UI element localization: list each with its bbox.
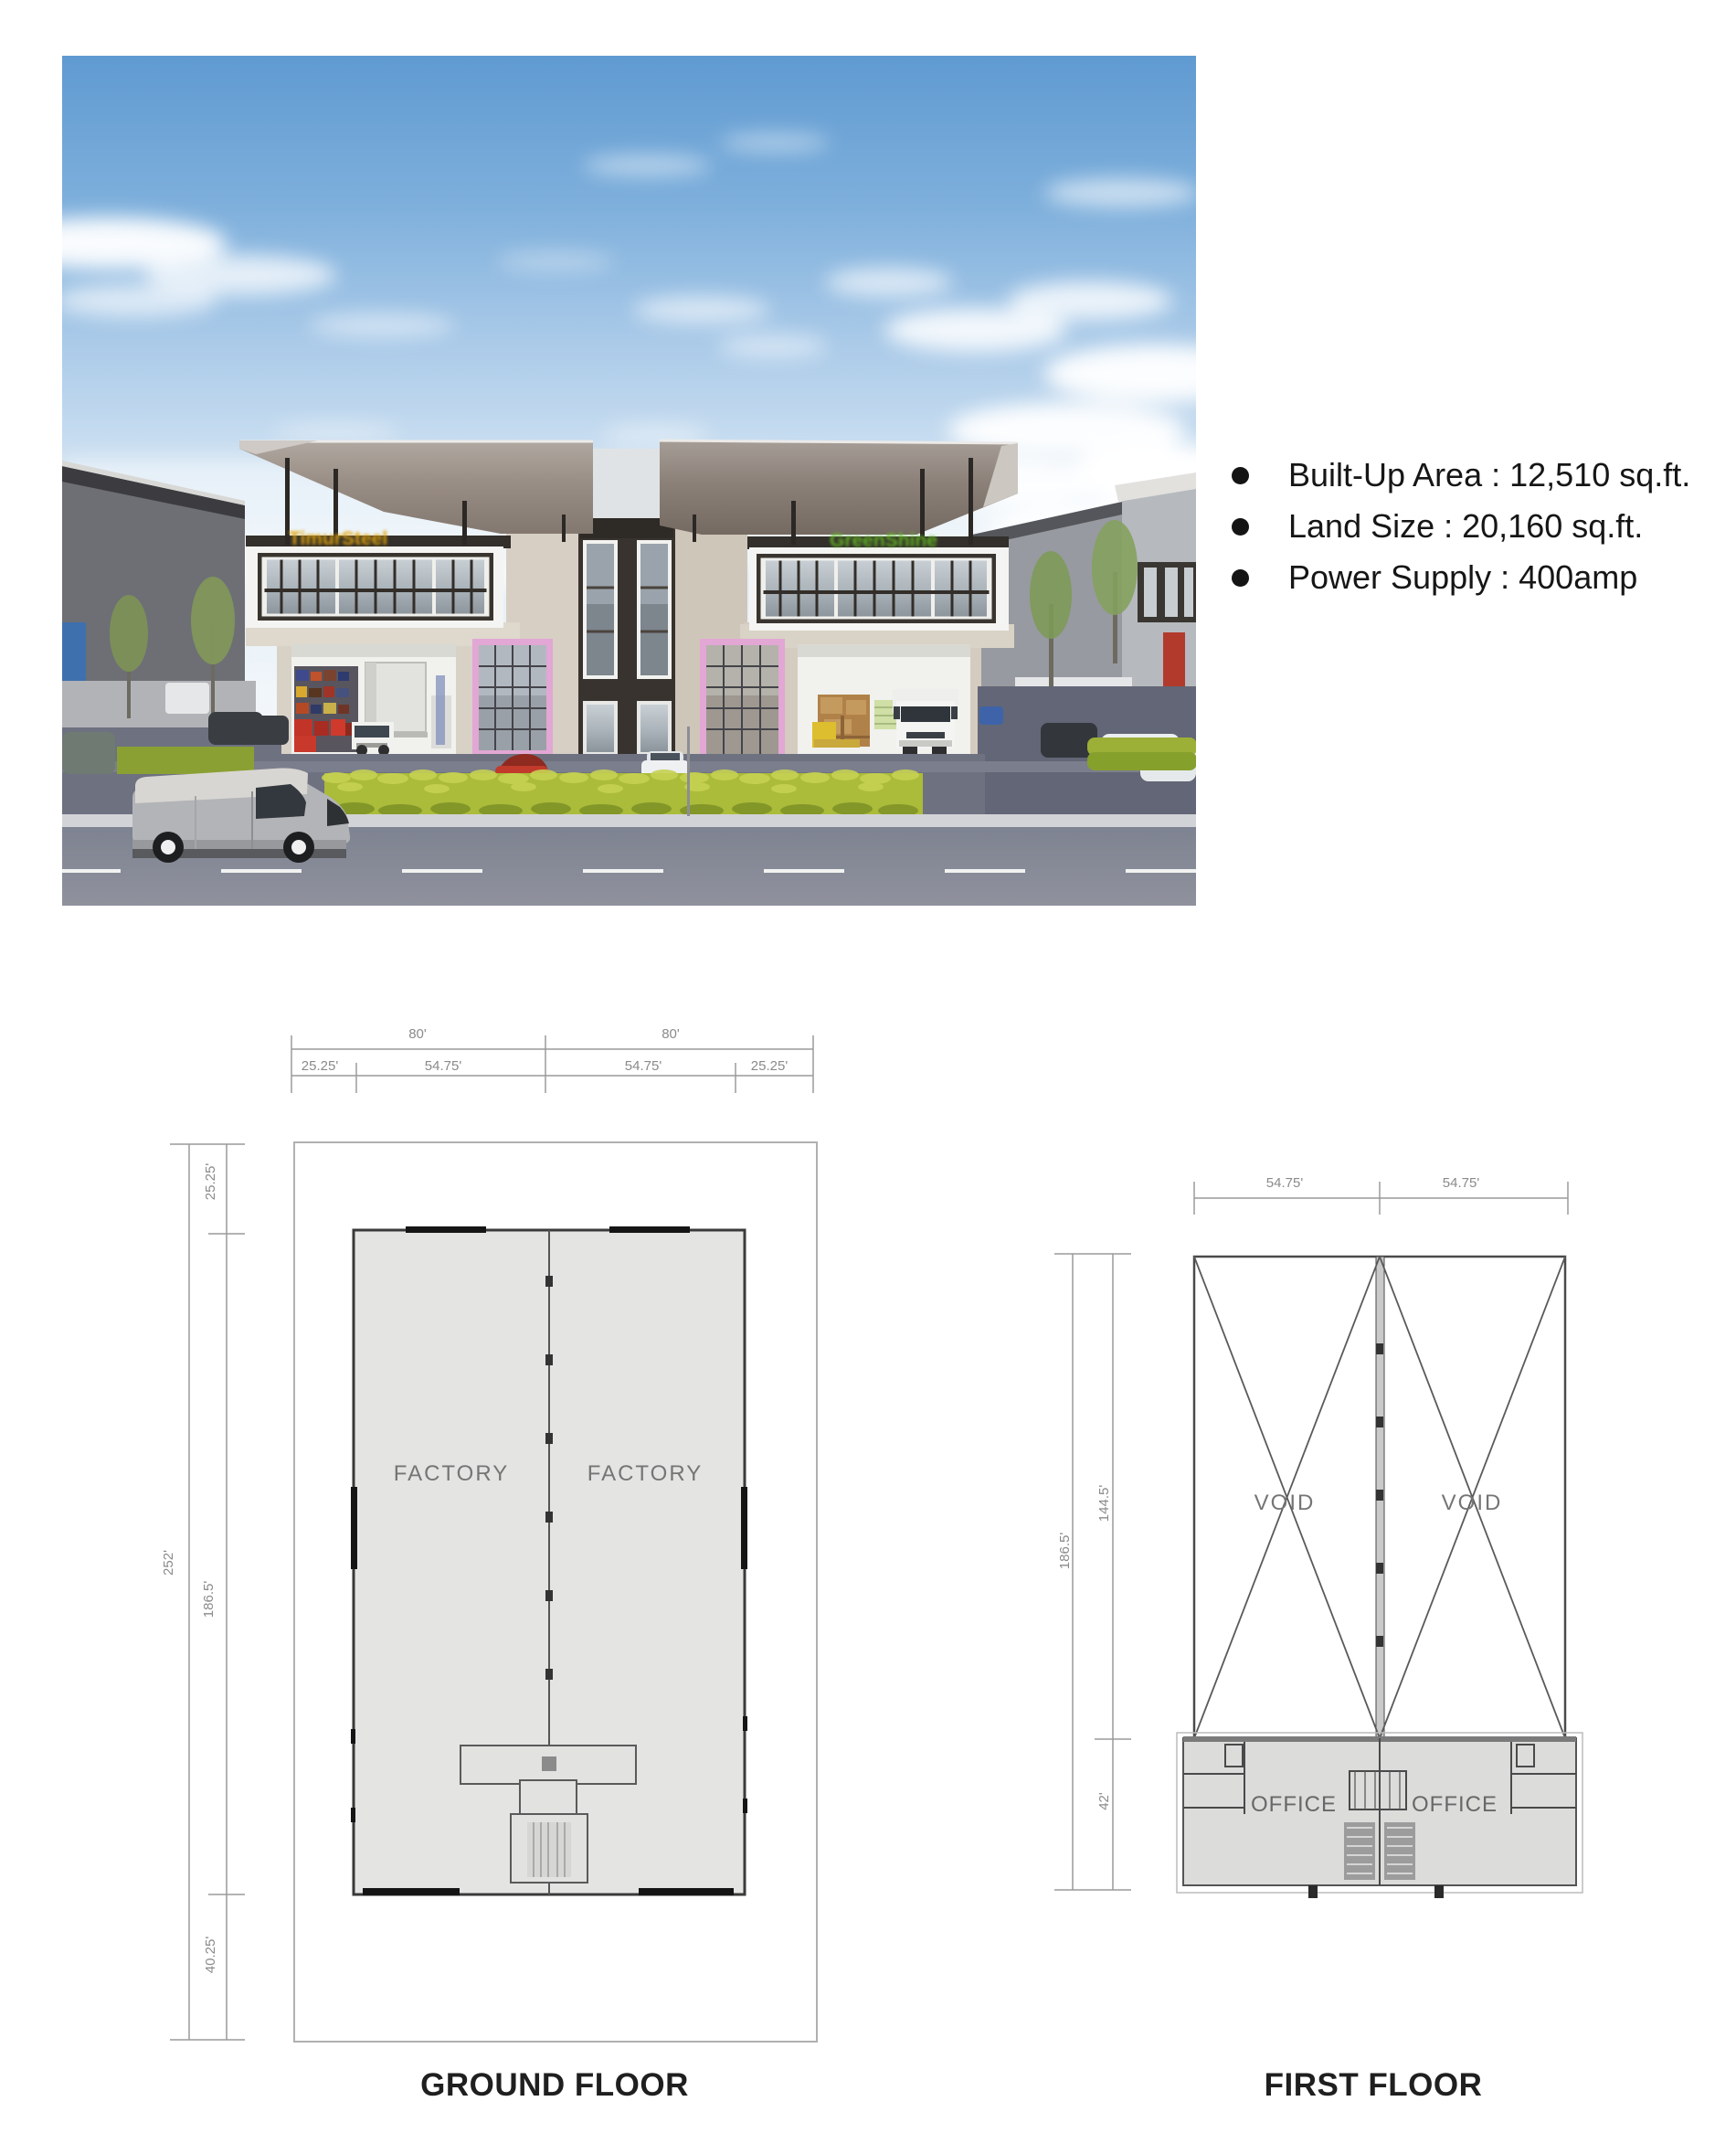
svg-text:252': 252' <box>161 1550 176 1576</box>
svg-text:25.25': 25.25' <box>751 1058 789 1074</box>
svg-text:FACTORY: FACTORY <box>587 1461 703 1486</box>
svg-text:54.75': 54.75' <box>425 1058 462 1074</box>
svg-text:GreenShine: GreenShine <box>830 530 937 551</box>
svg-text:TimurSteel: TimurSteel <box>289 528 387 549</box>
svg-text:54.75': 54.75' <box>1266 1175 1304 1191</box>
svg-text:25.25': 25.25' <box>203 1163 218 1201</box>
svg-text:54.75': 54.75' <box>1443 1175 1480 1191</box>
svg-text:FACTORY: FACTORY <box>394 1461 509 1486</box>
svg-text:42': 42' <box>1096 1792 1112 1810</box>
svg-text:OFFICE: OFFICE <box>1412 1792 1498 1817</box>
svg-text:OFFICE: OFFICE <box>1251 1792 1337 1817</box>
svg-text:VOID: VOID <box>1254 1491 1316 1515</box>
svg-text:144.5': 144.5' <box>1096 1485 1112 1523</box>
svg-text:186.5': 186.5' <box>1057 1533 1073 1570</box>
svg-text:80': 80' <box>408 1026 427 1042</box>
svg-text:54.75': 54.75' <box>625 1058 662 1074</box>
svg-text:40.25': 40.25' <box>203 1937 218 1974</box>
svg-text:VOID: VOID <box>1442 1491 1503 1515</box>
svg-text:80': 80' <box>662 1026 680 1042</box>
svg-text:186.5': 186.5' <box>201 1581 217 1618</box>
svg-text:25.25': 25.25' <box>302 1058 339 1074</box>
